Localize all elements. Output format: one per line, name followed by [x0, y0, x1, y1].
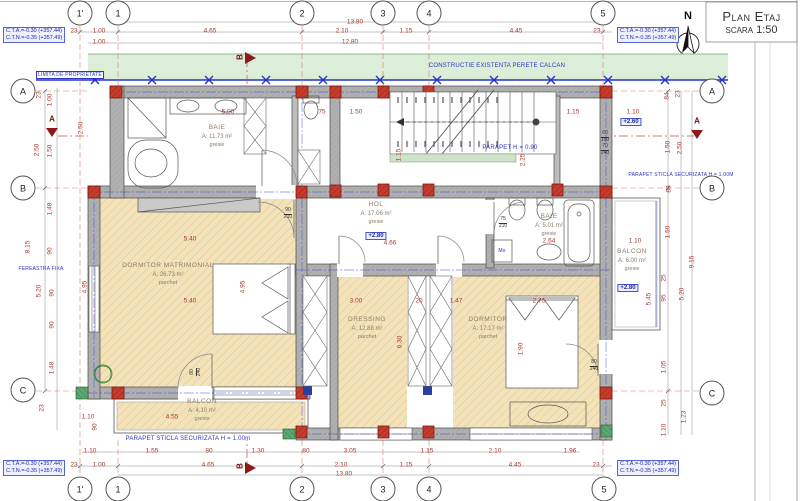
grid-bubble-3: 3: [371, 1, 396, 26]
dimension-label: 20: [415, 298, 422, 305]
dimension-label: 1.15: [400, 28, 413, 35]
dimension-label-vertical: 1.00: [47, 94, 54, 107]
dimension-label: 4.66: [384, 240, 397, 247]
dimension-label: 80: [205, 448, 212, 455]
grid-bubble-4: 4: [417, 1, 442, 26]
dimension-label-vertical: 2.50: [677, 142, 684, 155]
dimension-label-vertical: 1.10: [661, 424, 668, 437]
north-label: N: [684, 10, 692, 22]
dimension-label-vertical: 8.15: [25, 241, 32, 254]
constructie-existenta-label: CONSTRUCTIE EXISTENTA PERETE CALCAN: [429, 63, 565, 69]
dimension-label-vertical: 5.20: [36, 285, 43, 298]
floor-plan-drawing: Plan Etaj scara 1:50 13.80231.004.652.10…: [0, 0, 800, 501]
dimension-label-vertical: 90: [49, 289, 56, 296]
room-label-dormitor: DORMITORA: 17.17 m²parchet: [468, 316, 507, 342]
dimension-label: 2.10: [335, 462, 348, 469]
dimension-label-vertical: 25: [661, 399, 668, 406]
level-badge: +2.80: [365, 232, 386, 240]
dimension-label-vertical: 88: [666, 185, 673, 192]
dimension-label: 1.10: [82, 414, 95, 421]
dimension-label: 5.40: [184, 236, 197, 243]
dimension-label: 75: [318, 109, 325, 116]
dimension-label-vertical: 1.15: [396, 149, 403, 162]
dimension-label: 80: [302, 448, 309, 455]
elevation-note: C.T.A.=-0.30 (+357.44)C.T.N.=-0.35 (+357…: [3, 460, 65, 476]
dimension-label-vertical: 90: [92, 423, 99, 430]
dimension-label: 1.00: [93, 28, 106, 35]
door-size-label: 60190: [601, 131, 609, 143]
dimension-label-vertical: 1.48: [49, 362, 56, 375]
dimension-label: 1.50: [350, 109, 363, 116]
dimension-label-vertical: 1.23: [681, 411, 688, 424]
dimension-label-vertical: 9.15: [689, 256, 696, 269]
dimension-label: 2.10: [489, 448, 502, 455]
level-badge: +2.80: [617, 284, 638, 292]
parapet-sticla-bottom-label: PARAPET STICLA SECURIZATA H = 1.00m: [126, 436, 251, 442]
washing-machine-label: Mo: [498, 248, 505, 254]
dimension-label: 4.45: [510, 28, 523, 35]
dimension-label: 1.15: [400, 462, 413, 469]
room-label-baie: BAIEA: 5.01 m²gresie: [535, 213, 563, 239]
grid-bubble-B: B: [11, 176, 36, 201]
dimension-label: 13.80: [336, 471, 352, 478]
section-marker-label: A: [49, 115, 55, 124]
dimension-label: 2.10: [336, 28, 349, 35]
dimension-label: 3.00: [350, 298, 363, 305]
limita-proprietate-label: LIMITA DE PROPRIETATE: [36, 71, 104, 79]
grid-bubble-3: 3: [371, 477, 396, 501]
dimension-label-vertical: 1.90: [518, 343, 525, 356]
dimension-label: 3.05: [344, 448, 357, 455]
section-marker-label: A: [694, 117, 700, 126]
dimension-label-vertical: 23: [36, 91, 43, 98]
dimension-label-vertical: 95: [661, 294, 668, 301]
grid-bubble-5: 5: [592, 477, 617, 501]
dimension-label: 5.00: [222, 109, 235, 116]
dimension-label: 1.47: [450, 298, 463, 305]
dimension-label-vertical: 5.20: [679, 288, 686, 301]
dimension-label: 1.30: [252, 448, 265, 455]
dimension-label-vertical: 1.05: [661, 361, 668, 374]
dimension-label: 1.10: [629, 238, 642, 245]
dimension-label-vertical: 90: [49, 321, 56, 328]
dimension-label-vertical: 84: [664, 92, 671, 99]
level-badge: +2.60: [620, 118, 641, 126]
dimension-label: 1.96: [564, 448, 577, 455]
dimension-label-vertical: 90: [47, 247, 54, 254]
room-label-hol: HOLA: 17.06 m²gresie: [360, 201, 391, 227]
dimension-label: 1.10: [627, 109, 640, 116]
dimension-label: 4.65: [202, 462, 215, 469]
grid-bubble-1: 1: [106, 1, 131, 26]
dimension-label: 23: [593, 28, 600, 35]
door-size-label: 75210: [499, 217, 507, 229]
dimension-label: 12.80: [342, 39, 358, 46]
grid-bubble-2: 2: [290, 477, 315, 501]
dimension-label-vertical: 23: [675, 90, 682, 97]
dimension-label-vertical: 1.50: [665, 226, 672, 239]
dimension-label: 1.00: [93, 39, 106, 46]
dimension-label: 23: [70, 28, 77, 35]
grid-bubble-5: 5: [591, 1, 616, 26]
room-label-baie: BAIEA: 11.73 m²gresie: [202, 124, 233, 150]
dimension-label-vertical: 1.50: [665, 141, 672, 154]
dimension-label-vertical: 1.48: [47, 203, 54, 216]
section-marker-label: B: [236, 54, 245, 60]
door-size-label: 90210: [284, 208, 292, 220]
room-label-dormitor-matrimonial: DORMITOR MATRIMONIALA: 26.73 m²parchet: [122, 262, 214, 288]
dimension-label-vertical: 5.45: [646, 293, 653, 306]
dimension-label: 4.55: [166, 414, 179, 421]
dimension-label: 23: [592, 462, 599, 469]
dimension-label-vertical: 1.50: [47, 145, 54, 158]
room-label-balcon: BALCONA: 4.10 m²gresie: [187, 398, 217, 424]
room-label-balcon: BALCONA: 6.00 m²gresie: [617, 248, 647, 274]
dimension-label: 1.15: [567, 109, 580, 116]
grid-bubble-B: B: [700, 176, 725, 201]
grid-bubble-A: A: [11, 79, 36, 104]
dimension-label: 5.40: [184, 298, 197, 305]
elevation-note: C.T.A.=-0.30 (+357.44)C.T.N.=-0.35 (+357…: [617, 27, 679, 43]
dimension-label: 2.64: [543, 238, 556, 245]
dimension-label-vertical: 4.95: [82, 281, 89, 294]
door-size-label: 80240: [190, 368, 202, 376]
grid-bubble-1p: 1': [68, 477, 93, 501]
door-size-label: 80240: [590, 360, 598, 372]
grid-bubble-C: C: [11, 378, 36, 403]
elevation-note: C.T.A.=-0.30 (+357.44)C.T.N.=-0.35 (+357…: [617, 460, 679, 476]
dimension-label-vertical: 25: [661, 274, 668, 281]
dimension-label-vertical: 2.50: [34, 144, 41, 157]
dimension-label: 23: [70, 462, 77, 469]
dimension-label: 1.00: [93, 462, 106, 469]
dimension-label-vertical: 23: [39, 404, 46, 411]
dimension-label: 1.10: [84, 448, 97, 455]
fereastra-fixa-label: FEREASTRA FIXA: [18, 266, 63, 272]
elevation-note: C.T.A.=-0.30 (+357.44)C.T.N.=-0.35 (+357…: [3, 27, 65, 43]
dimension-label-vertical: 6.30: [397, 336, 404, 349]
labels-layer: 13.80231.004.652.101.154.45231.0012.805.…: [0, 0, 800, 501]
dimension-label-vertical: 4.95: [240, 281, 247, 294]
dimension-label-vertical: 2.50: [78, 122, 85, 135]
dimension-label: 4.65: [204, 28, 217, 35]
room-label-dressing: DRESSINGA: 12.88 m²parchet: [348, 316, 386, 342]
dimension-label: 13.80: [347, 19, 363, 26]
grid-bubble-A: A: [700, 79, 725, 104]
dimension-label-vertical: 2.25: [520, 154, 527, 167]
grid-bubble-4: 4: [417, 477, 442, 501]
dimension-label: 1.15: [421, 448, 434, 455]
dimension-label: 2.75: [533, 298, 546, 305]
section-marker-label: B: [236, 463, 245, 469]
grid-bubble-C: C: [700, 381, 725, 406]
grid-bubble-1p: 1': [68, 1, 93, 26]
dimension-label: 1.55: [146, 448, 159, 455]
grid-bubble-2: 2: [290, 1, 315, 26]
grid-bubble-1: 1: [106, 477, 131, 501]
door-size-label: 70240: [601, 144, 609, 156]
parapet-stairs-label: PARAPET H = 0.90: [482, 145, 537, 151]
dimension-label: 4.45: [509, 462, 522, 469]
